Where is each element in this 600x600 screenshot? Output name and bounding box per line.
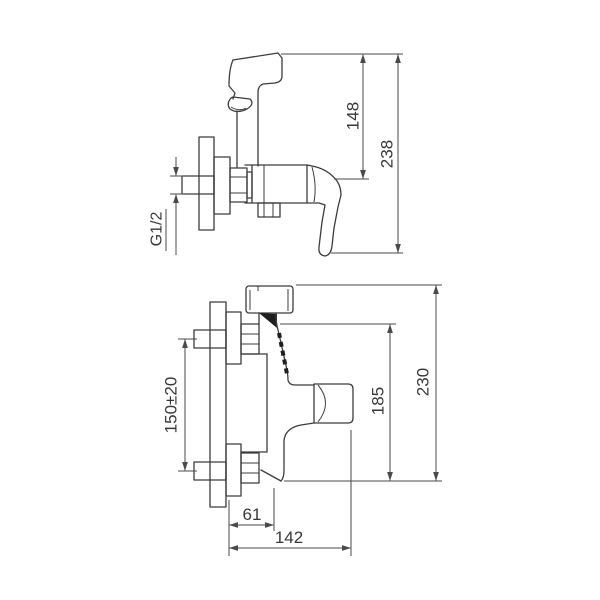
hex-nut (230, 168, 247, 202)
thread-size-label: G1/2 (149, 212, 166, 247)
side-overall-height-label: 230 (414, 368, 433, 396)
hand-sprayer (228, 53, 282, 167)
bottom-escutcheon (226, 444, 241, 496)
wall-section (210, 302, 226, 507)
depth-dimensions: 61 142 (229, 430, 351, 556)
escutcheon (214, 157, 230, 214)
front-overall-height-label: 238 (378, 140, 397, 168)
wall-section (199, 137, 214, 230)
side-height-dimensions: 185 230 (280, 285, 442, 481)
inlet-pipe-section (182, 176, 214, 194)
collar (247, 172, 252, 198)
inlet-spacing-dimension: 150±20 (162, 339, 198, 471)
top-escutcheon (226, 312, 241, 364)
wall-to-handle-label: 142 (275, 528, 303, 547)
technical-drawing: G1/2 148 238 (0, 0, 600, 600)
front-height-dimensions: 148 238 (281, 54, 403, 253)
thread-dimension: G1/2 (149, 157, 185, 255)
front-view: G1/2 148 238 (149, 53, 404, 256)
sprayer-height-label: 148 (344, 102, 363, 130)
wall-to-body-label: 61 (243, 505, 262, 524)
handle-side (314, 384, 353, 423)
top-hex-nut (241, 324, 259, 354)
body-height-label: 185 (369, 387, 388, 415)
hex-cap (258, 203, 280, 217)
valve-body (245, 165, 307, 203)
sprayer-holder (259, 313, 277, 328)
sprayer-head (246, 286, 293, 313)
inlet-spacing-label: 150±20 (162, 377, 181, 434)
bottom-hex-nut (241, 453, 259, 483)
mixer-body (241, 313, 314, 481)
side-view: 150±20 185 230 61 142 (162, 285, 443, 556)
drawing-canvas: G1/2 148 238 (0, 0, 600, 600)
